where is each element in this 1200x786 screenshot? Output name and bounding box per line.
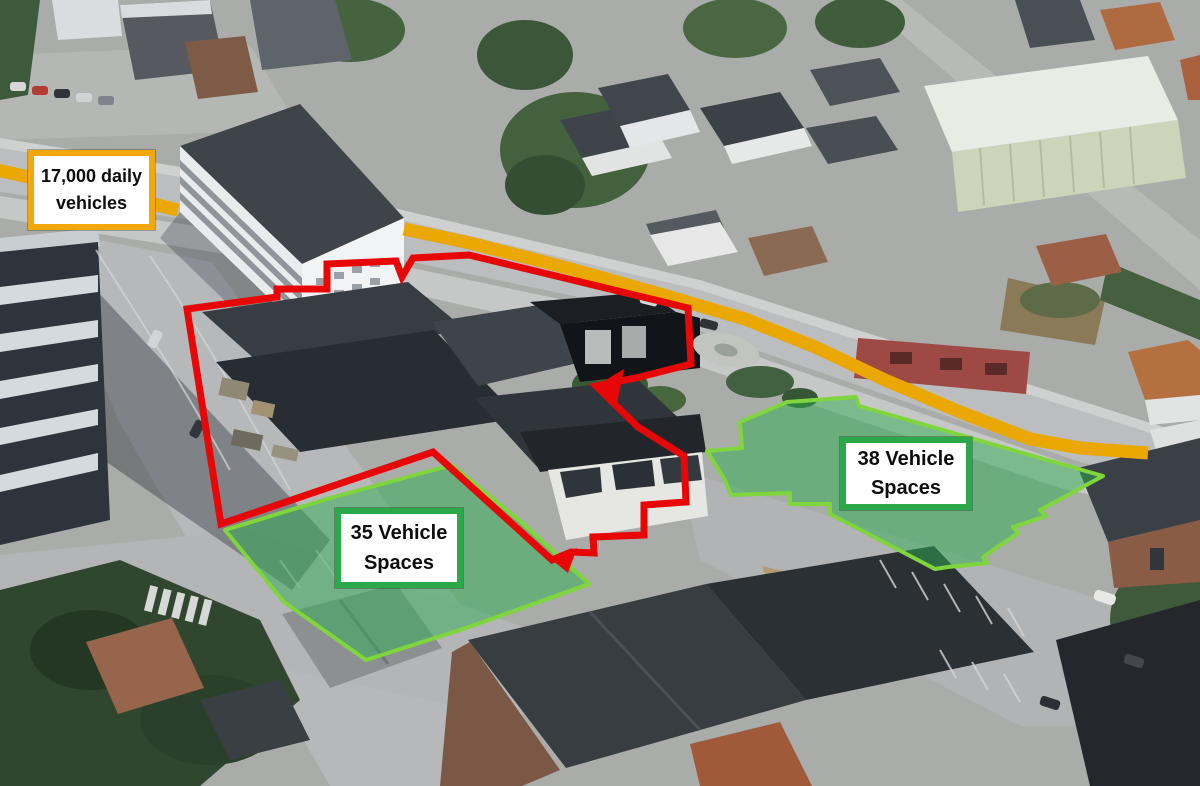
parking-east-label: 38 Vehicle Spaces	[840, 437, 972, 510]
aerial-site-plan: 17,000 daily vehicles 35 Vehicle Spaces …	[0, 0, 1200, 786]
parking-east-line2: Spaces	[871, 474, 941, 503]
aerial-basemap	[0, 0, 1200, 786]
traffic-count-label: 17,000 daily vehicles	[28, 150, 155, 230]
traffic-count-line1: 17,000 daily	[41, 163, 142, 190]
traffic-count-line2: vehicles	[56, 190, 127, 217]
parking-west-line1: 35 Vehicle	[351, 518, 448, 548]
parking-east-line1: 38 Vehicle	[858, 445, 955, 474]
parking-west-line2: Spaces	[364, 548, 434, 578]
parking-west-label: 35 Vehicle Spaces	[335, 508, 463, 588]
